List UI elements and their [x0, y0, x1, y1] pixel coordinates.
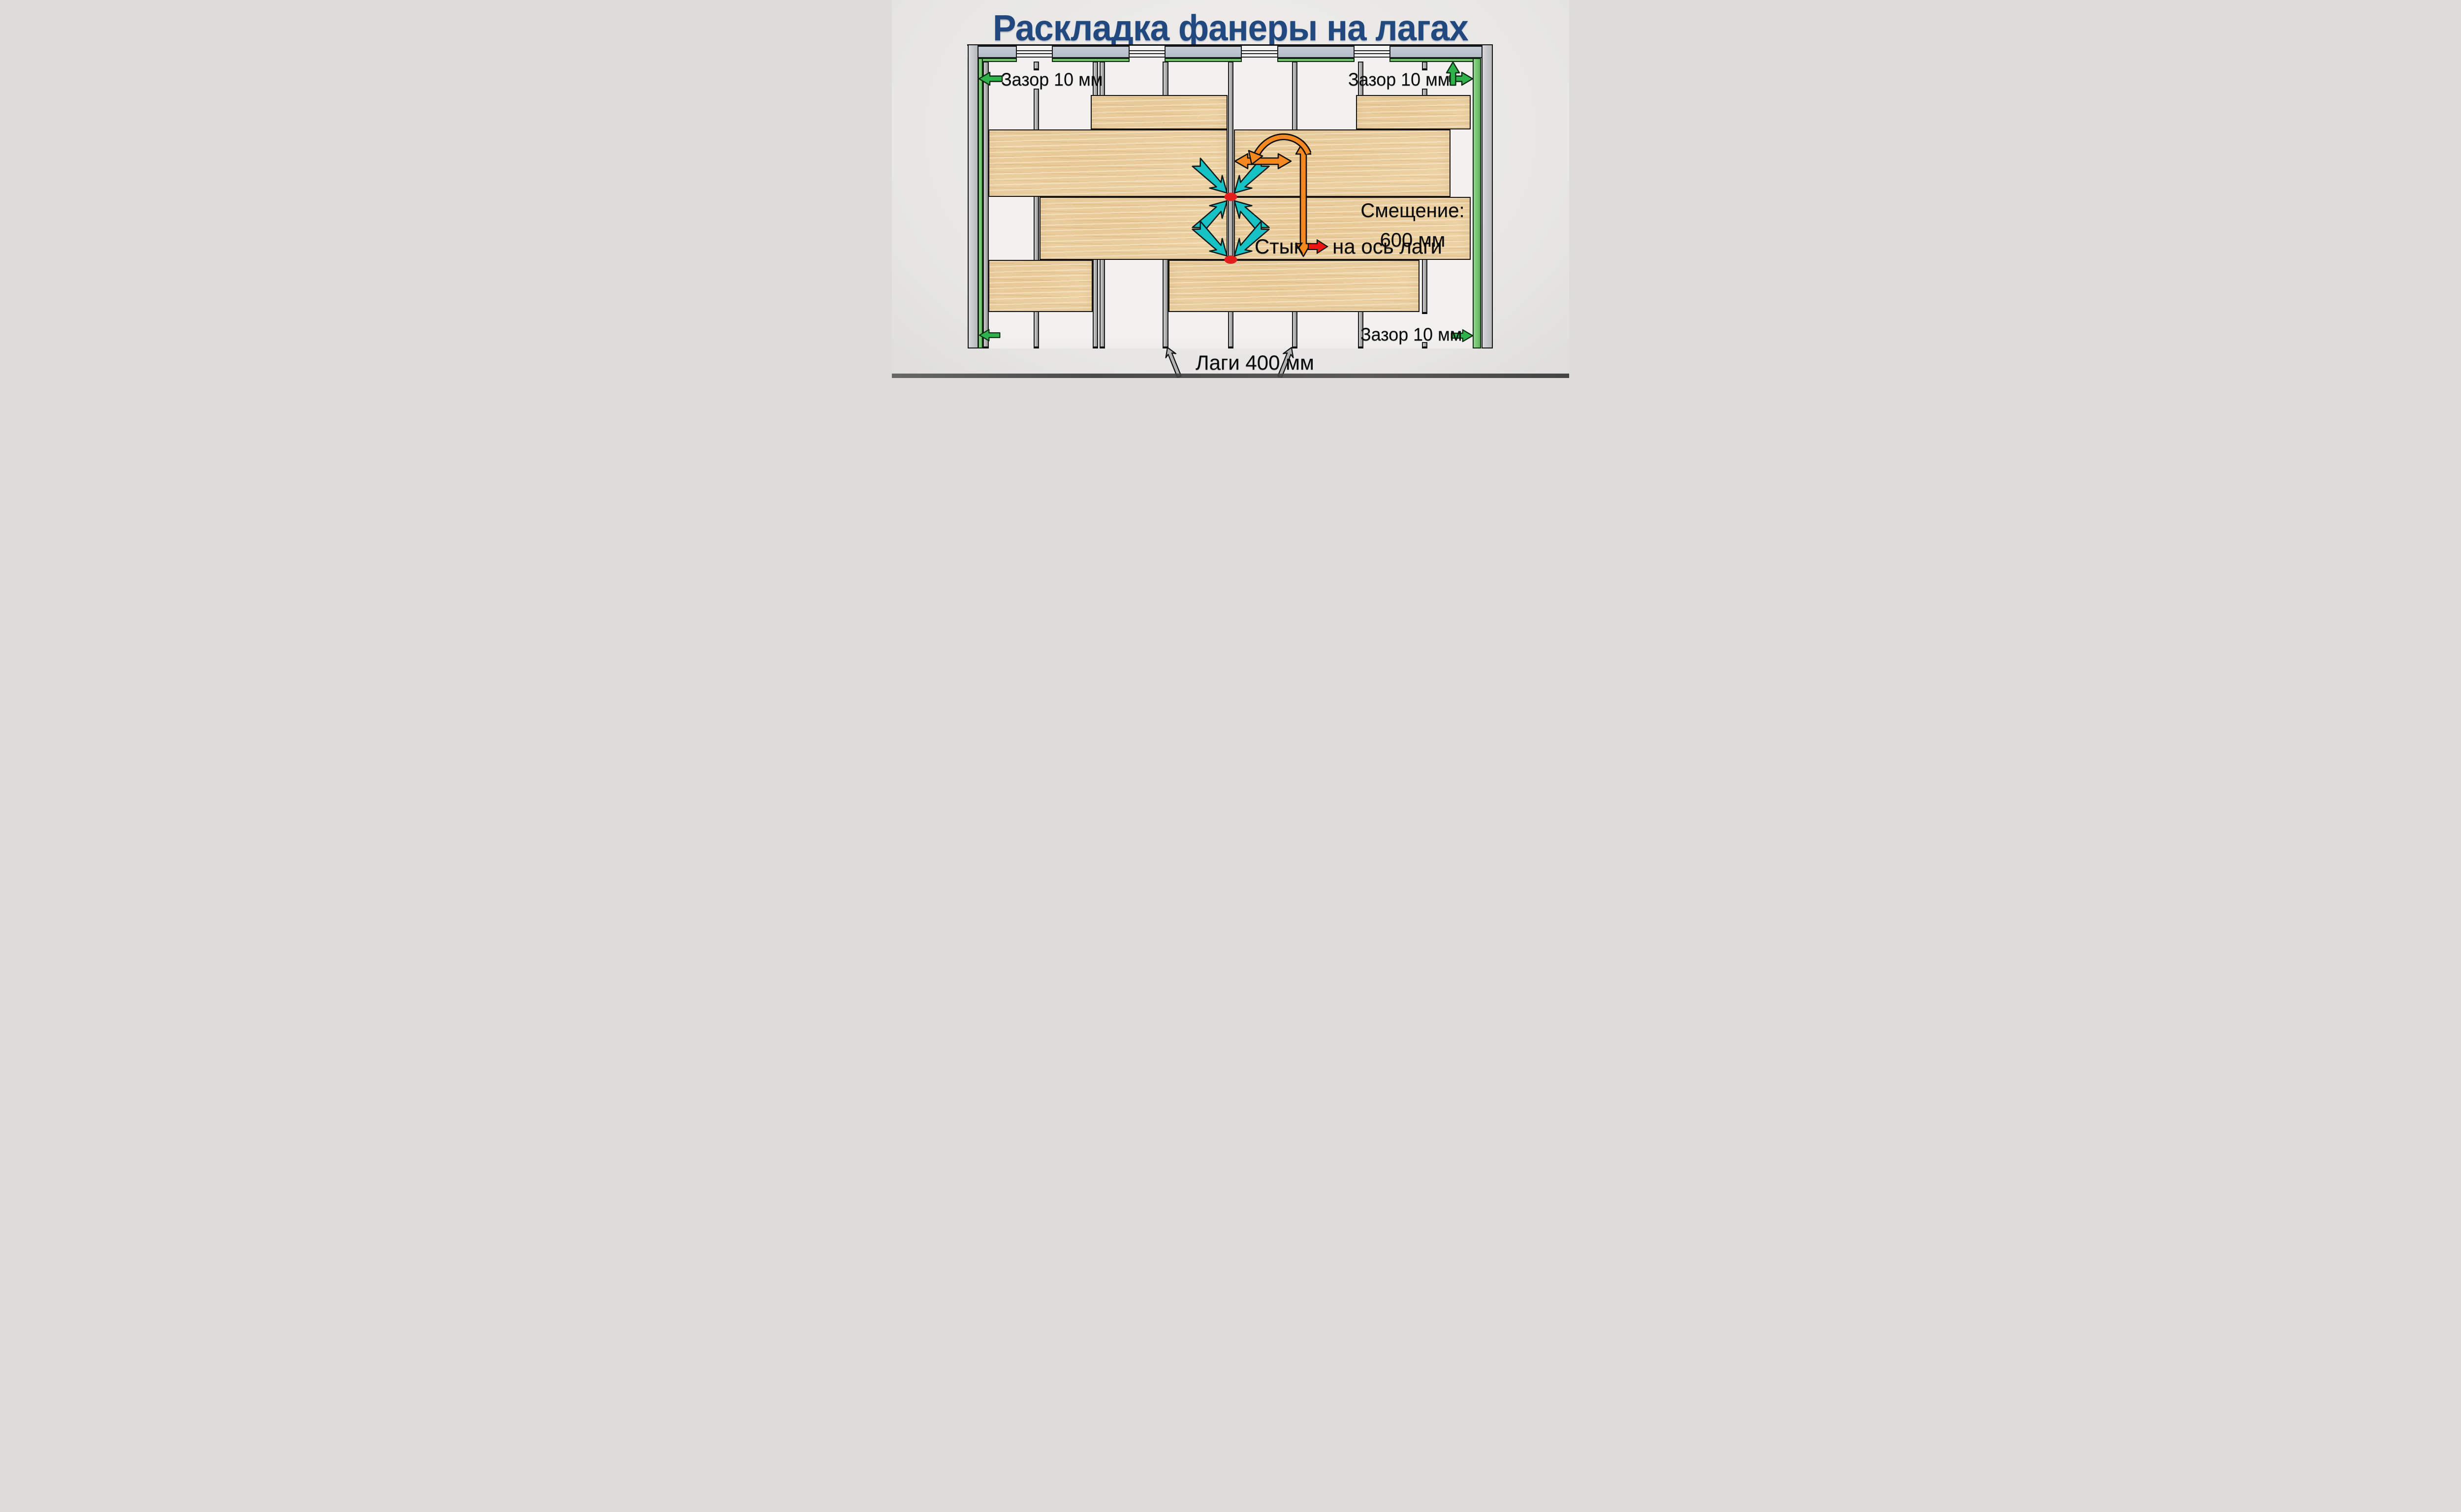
joint-label-rest: на ось лаги: [1332, 235, 1442, 258]
wall-block: [1277, 46, 1355, 58]
gap-strip-top: [978, 58, 1017, 62]
plywood-sheet: [1168, 260, 1420, 312]
wall-plate-line: [1242, 50, 1277, 51]
gap-strip-top: [1165, 58, 1242, 62]
wall-block: [1389, 46, 1493, 58]
plywood-sheet: [988, 260, 1093, 312]
bottom-edge-strip: [892, 374, 1569, 378]
wall-plate-line: [1355, 53, 1390, 54]
gap-label-bottom-right: Зазор 10 мм: [1360, 324, 1462, 345]
wall-plate-line: [1130, 50, 1165, 51]
wall-plate-line: [1017, 50, 1052, 51]
plywood-sheet: [1040, 197, 1228, 260]
plywood-sheet: [1091, 95, 1228, 129]
wall-block: [1165, 46, 1242, 58]
gap-strip-top: [1052, 58, 1130, 62]
joist-segment: [983, 62, 989, 348]
gap-strip-top: [1389, 58, 1481, 62]
joint-label: Стык на ось лаги: [1255, 235, 1442, 258]
wall-plate-line: [1017, 53, 1052, 54]
joist-spacing-label: Лаги 400 мм: [1196, 351, 1314, 375]
right-wall: [1482, 44, 1493, 348]
wall-plate-line: [1355, 50, 1390, 51]
gap-label-top-left: Зазор 10 мм: [1001, 69, 1103, 90]
plywood-sheet: [1356, 95, 1471, 129]
joint-label-word: Стык: [1255, 235, 1303, 258]
gap-strip-left: [978, 58, 983, 349]
wall-plate-line: [1130, 53, 1165, 54]
offset-label-line1: Смещение:: [1349, 196, 1477, 225]
plywood-sheet: [988, 129, 1228, 197]
wall-plate-line: [1017, 57, 1052, 58]
plywood-sheet: [1234, 129, 1451, 197]
red-arrow-right-icon: [1307, 239, 1328, 254]
wall-plate-line: [1355, 57, 1390, 58]
wall-plate-line: [1130, 57, 1165, 58]
wall-block: [1052, 46, 1130, 58]
gap-label-top-right: Зазор 10 мм: [1348, 69, 1450, 90]
wall-plate-line: [1242, 57, 1277, 58]
diagram-canvas: Раскладка фанеры на лагах Зазор 10 мм За…: [892, 0, 1569, 378]
wall-plate-line: [1242, 53, 1277, 54]
left-wall: [968, 44, 978, 348]
gap-strip-top: [1277, 58, 1355, 62]
floor-structure: [892, 0, 1569, 378]
